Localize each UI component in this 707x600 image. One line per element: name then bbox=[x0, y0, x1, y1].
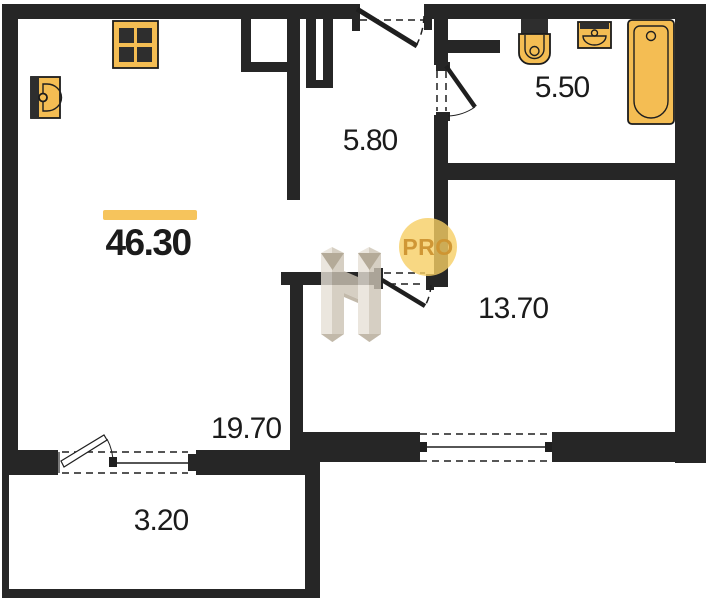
kitchen-sink-icon bbox=[31, 77, 62, 118]
plan-symbols-overlay bbox=[0, 0, 707, 600]
bedroom-door-icon bbox=[382, 273, 431, 306]
room-area-label-living: 19.70 bbox=[211, 412, 281, 446]
room-area-label-bathroom: 5.50 bbox=[535, 71, 589, 105]
total-area-label: 46.30 bbox=[105, 222, 190, 264]
bedroom-window-icon bbox=[420, 434, 552, 461]
stove-icon bbox=[113, 21, 158, 68]
total-area-accent-bar bbox=[103, 210, 197, 220]
balcony-door-icon bbox=[59, 435, 188, 473]
bathtub-icon bbox=[628, 20, 674, 124]
entrance-door-icon bbox=[357, 9, 424, 46]
bathroom-door-icon bbox=[437, 66, 475, 116]
room-area-label-balcony: 3.20 bbox=[134, 504, 188, 538]
developer-logo-watermark-icon bbox=[321, 247, 381, 342]
floor-plan: PRO 46.30 19.70 5.80 5.50 13.70 3.20 bbox=[0, 0, 707, 600]
room-area-label-bedroom: 13.70 bbox=[478, 292, 548, 326]
sink-icon bbox=[578, 22, 611, 48]
toilet-icon bbox=[519, 19, 550, 64]
room-area-label-hallway: 5.80 bbox=[343, 124, 397, 158]
pro-watermark: PRO bbox=[399, 218, 457, 276]
